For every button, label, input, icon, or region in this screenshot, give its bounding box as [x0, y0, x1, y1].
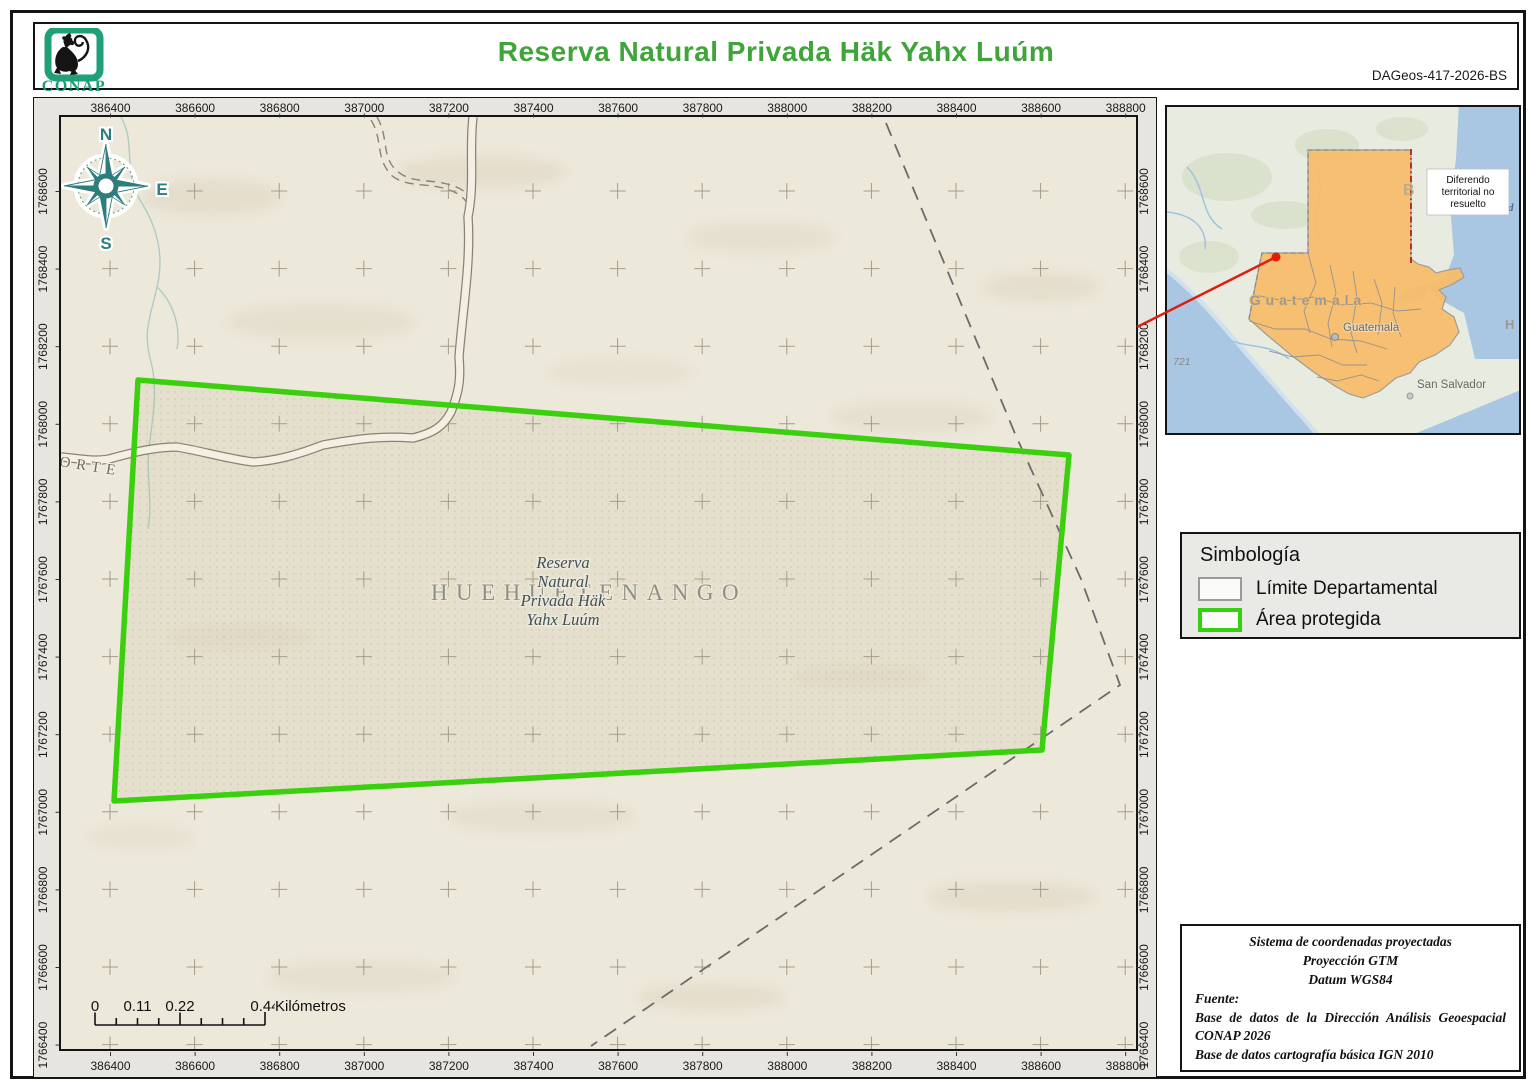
svg-text:territorial no: territorial no [1442, 187, 1495, 198]
x-axis-tick-label: 387600 [598, 101, 638, 115]
x-axis-tick-label: 388400 [936, 1059, 976, 1073]
svg-text:Privada Häk: Privada Häk [520, 591, 606, 610]
map-sheet: CONAP Reserva Natural Privada Häk Yahx L… [0, 0, 1536, 1089]
x-axis-tick-label: 386400 [90, 1059, 130, 1073]
svg-text:resuelto: resuelto [1450, 199, 1486, 210]
legend: Simbología Límite Departamental Área pro… [1180, 532, 1521, 639]
credits-box: Sistema de coordenadas proyectadas Proye… [1180, 924, 1521, 1072]
x-axis-tick-label: 388200 [852, 101, 892, 115]
territorial-note: Diferendo territorial no resuelto [1427, 169, 1509, 215]
y-axis-tick-label: 1766600 [36, 944, 50, 991]
y-axis-tick-label: 1766800 [36, 866, 50, 913]
x-axis-tick-label: 387800 [683, 101, 723, 115]
x-axis-tick-label: 388800 [1106, 101, 1146, 115]
x-axis-tick-label: 387600 [598, 1059, 638, 1073]
logo-text: CONAP [42, 78, 106, 94]
y-axis-tick-label: 1768400 [1137, 245, 1151, 292]
x-axis-tick-label: 387800 [683, 1059, 723, 1073]
y-axis-tick-label: 1767600 [1137, 556, 1151, 603]
scale-unit: Kilómetros [275, 998, 346, 1015]
fuente-label: Fuente: [1195, 990, 1506, 1009]
x-axis-tick-label: 386800 [260, 101, 300, 115]
compass-e: E [156, 180, 167, 199]
y-axis-tick-label: 1766600 [1137, 944, 1151, 991]
main-map: ORTE HUEHUETENANGO Reserva Natural Priva… [61, 117, 1136, 1049]
y-axis-tick-label: 1768000 [36, 401, 50, 448]
y-axis-tick-label: 1767400 [1137, 633, 1151, 680]
x-axis-tick-label: 388800 [1106, 1059, 1146, 1073]
inset-b-label: B [1403, 182, 1415, 199]
inset-country-label: Guatemala [1250, 292, 1367, 308]
source-line-1: Base de datos de la Dirección Análisis G… [1195, 1009, 1506, 1047]
x-axis-tick-label: 387400 [513, 101, 553, 115]
x-axis-tick-label: 388000 [767, 101, 807, 115]
inset-san-salvador-label: San Salvador [1417, 379, 1486, 391]
y-axis-tick-label: 1766800 [1137, 866, 1151, 913]
document-id: DAGeos-417-2026-BS [1372, 68, 1507, 83]
y-axis-tick-label: 1767600 [36, 556, 50, 603]
y-axis-tick-label: 1767000 [36, 789, 50, 836]
y-axis-tick-label: 1768200 [1137, 323, 1151, 370]
y-axis-tick-label: 1768200 [36, 323, 50, 370]
y-axis-tick-label: 1767200 [36, 711, 50, 758]
x-axis-tick-label: 387200 [429, 101, 469, 115]
inset-num-label: 721 [1173, 356, 1191, 368]
svg-text:0.11: 0.11 [123, 998, 151, 1015]
x-axis-tick-label: 386600 [175, 101, 215, 115]
inset-city-label: Guatemala [1343, 322, 1400, 334]
x-axis-tick-label: 386800 [260, 1059, 300, 1073]
projection-line: Proyección GTM [1195, 952, 1506, 971]
svg-text:0.22: 0.22 [165, 998, 194, 1015]
x-axis-tick-label: 388000 [767, 1059, 807, 1073]
header-bar: CONAP Reserva Natural Privada Häk Yahx L… [33, 22, 1519, 90]
datum-line: Datum WGS84 [1195, 971, 1506, 990]
legend-title: Simbología [1200, 544, 1300, 567]
x-axis-tick-label: 387000 [344, 1059, 384, 1073]
x-axis-tick-label: 386400 [90, 101, 130, 115]
limite-departamental-swatch [1198, 577, 1242, 601]
x-axis-tick-label: 388200 [852, 1059, 892, 1073]
x-axis-tick-label: 387400 [513, 1059, 553, 1073]
x-axis-tick-label: 387200 [429, 1059, 469, 1073]
y-axis-tick-label: 1766400 [36, 1021, 50, 1068]
inset-locator-map: Guatemala Guatemala San Salvador 721 Hon… [1165, 105, 1521, 435]
inset-san-salvador-dot [1407, 393, 1413, 399]
compass-s: S [100, 234, 111, 253]
svg-text:Reserva: Reserva [535, 553, 589, 572]
source-line-2: Base de datos cartografía básica IGN 201… [1195, 1046, 1506, 1065]
svg-text:0: 0 [91, 998, 99, 1015]
y-axis-tick-label: 1767400 [36, 633, 50, 680]
compass-n: N [100, 125, 112, 144]
y-axis-tick-label: 1767800 [36, 478, 50, 525]
svg-text:Yahx Luúm: Yahx Luúm [526, 610, 599, 629]
page-title: Reserva Natural Privada Häk Yahx Luúm [35, 36, 1517, 68]
map-frame: ORTE HUEHUETENANGO Reserva Natural Priva… [33, 97, 1157, 1078]
y-axis-tick-label: 1767200 [1137, 711, 1151, 758]
x-axis-tick-label: 388600 [1021, 1059, 1061, 1073]
x-axis-tick-label: 388600 [1021, 101, 1061, 115]
y-axis-tick-label: 1768400 [36, 245, 50, 292]
map-canvas: ORTE HUEHUETENANGO Reserva Natural Priva… [59, 115, 1138, 1051]
area-protegida-swatch [1198, 608, 1242, 632]
x-axis-tick-label: 386600 [175, 1059, 215, 1073]
y-axis-tick-label: 1766400 [1137, 1021, 1151, 1068]
svg-text:Diferendo: Diferendo [1446, 175, 1490, 186]
crs-line: Sistema de coordenadas proyectadas [1195, 933, 1506, 952]
x-axis-tick-label: 387000 [344, 101, 384, 115]
y-axis-tick-label: 1767800 [1137, 478, 1151, 525]
y-axis-tick-label: 1768600 [36, 168, 50, 215]
inset-ho-label: Ho [1505, 317, 1519, 332]
svg-text:Natural: Natural [536, 572, 589, 591]
inset-city-dot [1332, 334, 1339, 341]
y-axis-tick-label: 1767000 [1137, 789, 1151, 836]
x-axis-tick-label: 388400 [936, 101, 976, 115]
y-axis-tick-label: 1768600 [1137, 168, 1151, 215]
y-axis-tick-label: 1768000 [1137, 401, 1151, 448]
